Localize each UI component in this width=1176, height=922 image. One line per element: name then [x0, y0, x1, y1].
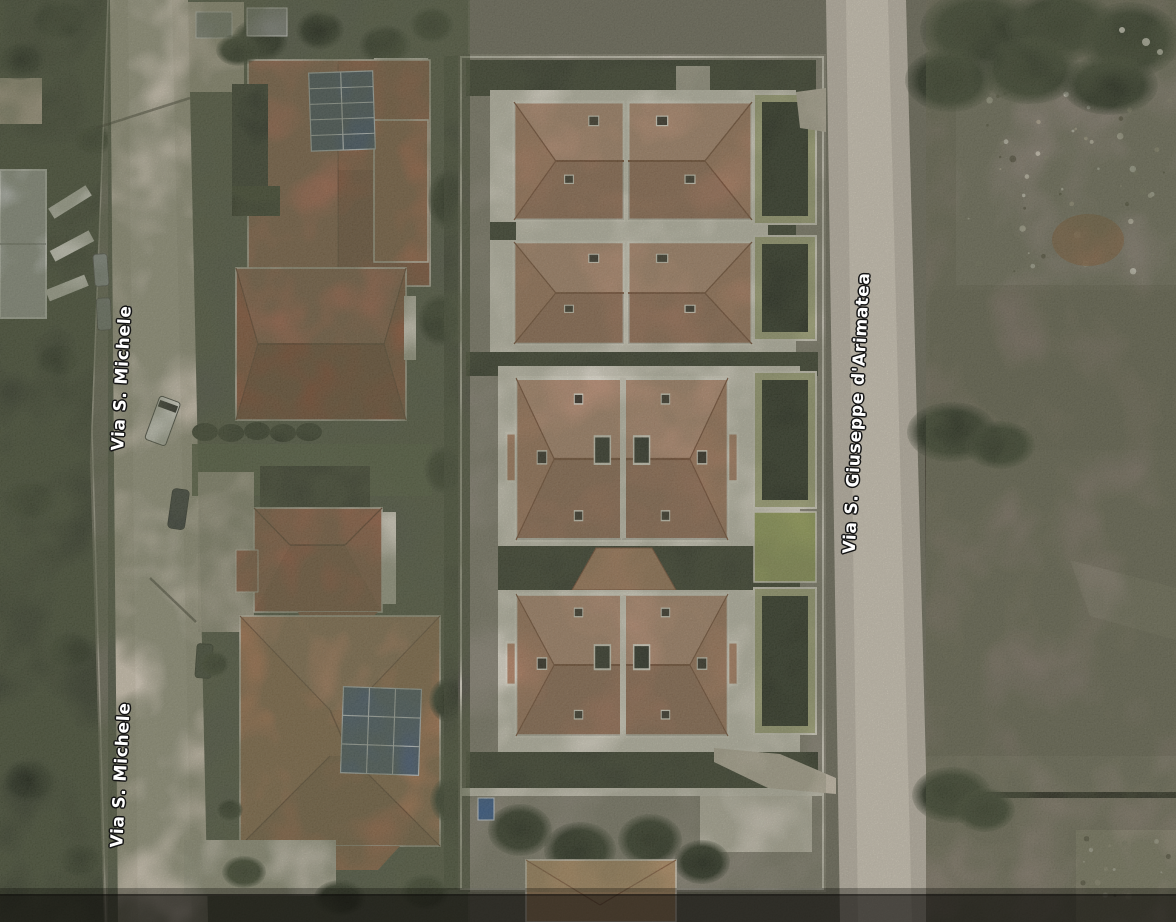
- aerial-imagery: [0, 0, 1176, 922]
- grain-light: [0, 0, 1176, 922]
- satellite-map-canvas[interactable]: Via S. Michele Via S. Michele Via S. Giu…: [0, 0, 1176, 922]
- bottom-shadow-band: [0, 894, 1176, 922]
